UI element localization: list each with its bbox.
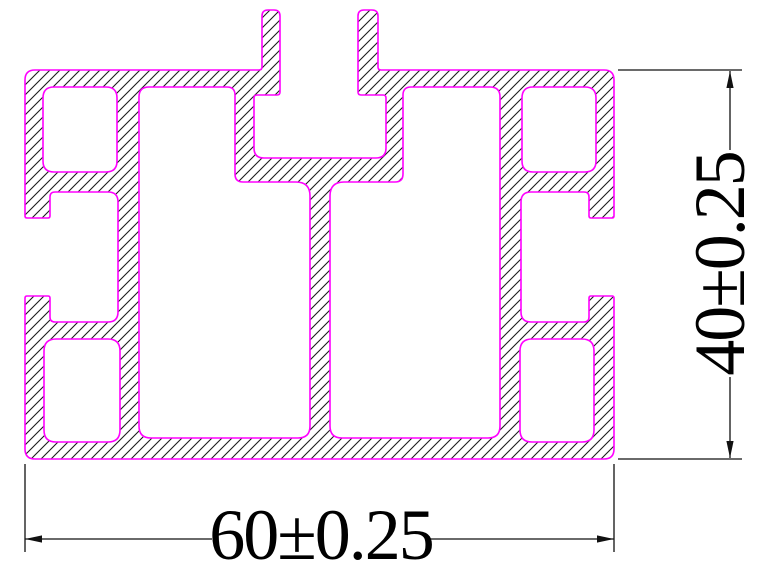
width-dimension-label: 60±0.25 [209, 495, 433, 575]
height-dimension-label: 40±0.25 [680, 152, 760, 376]
profile-cross-section-drawing: 60±0.25 40±0.25 [0, 0, 778, 582]
dimension-arrow-left [25, 535, 42, 542]
drawing-canvas: 60±0.25 40±0.25 [0, 0, 778, 582]
dimension-arrow-right [597, 535, 614, 542]
profile-outline [25, 10, 614, 459]
dimension-arrow-up [726, 71, 733, 88]
dimension-arrow-down [726, 441, 733, 458]
